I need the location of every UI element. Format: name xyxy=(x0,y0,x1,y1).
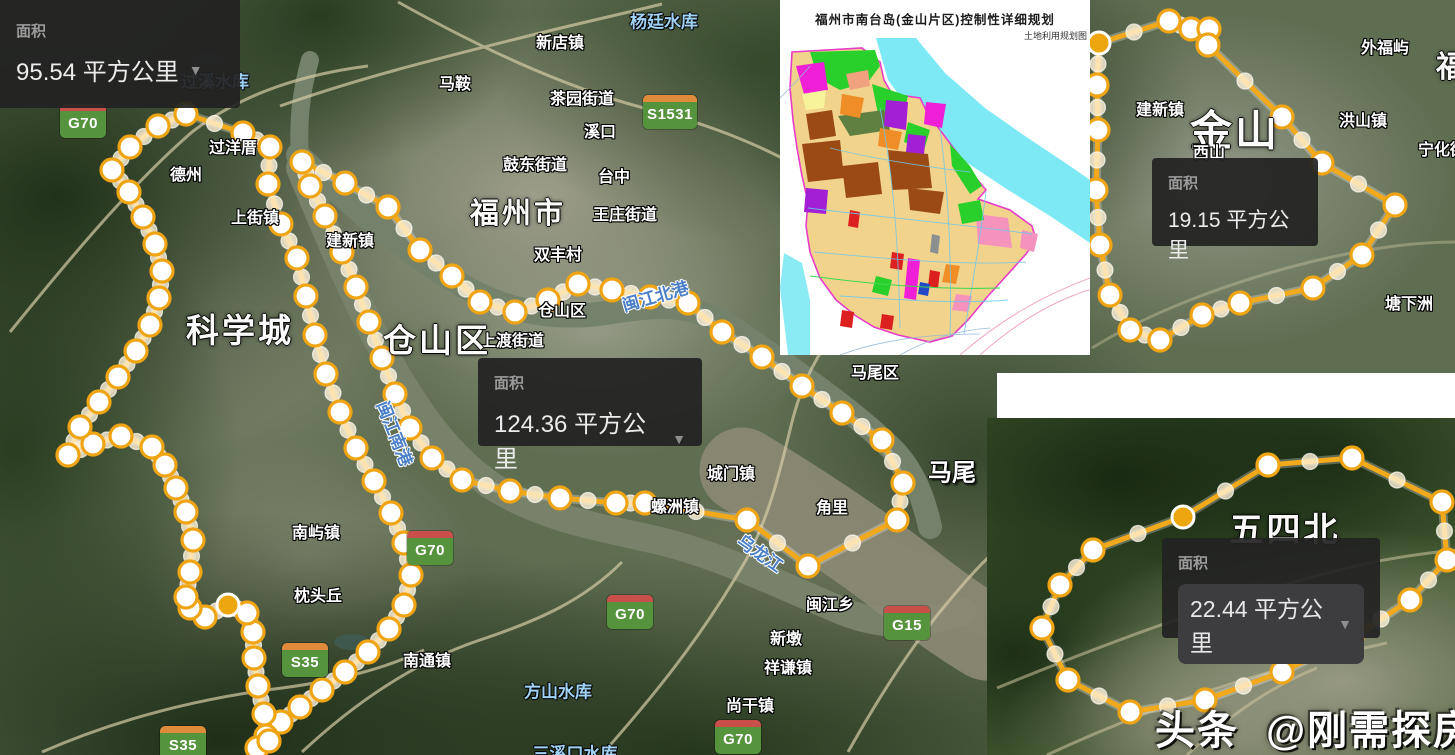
polygon-vertex[interactable] xyxy=(88,391,110,413)
polygon-vertex[interactable] xyxy=(1031,617,1053,639)
polygon-midpoint-handle[interactable] xyxy=(885,454,901,470)
polygon-vertex[interactable] xyxy=(1229,292,1251,314)
polygon-vertex[interactable] xyxy=(259,136,281,158)
polygon-vertex[interactable] xyxy=(315,363,337,385)
polygon-vertex[interactable] xyxy=(1197,34,1219,56)
polygon-midpoint-handle[interactable] xyxy=(697,310,713,326)
polygon-vertex[interactable] xyxy=(118,181,140,203)
polygon-vertex[interactable] xyxy=(605,492,627,514)
polygon-vertex[interactable] xyxy=(299,175,321,197)
polygon-vertex[interactable] xyxy=(139,314,161,336)
polygon-vertex[interactable] xyxy=(601,279,623,301)
polygon-midpoint-handle[interactable] xyxy=(527,487,543,503)
polygon-vertex[interactable] xyxy=(1089,234,1111,256)
polygon-vertex[interactable] xyxy=(441,265,463,287)
polygon-vertex[interactable] xyxy=(57,444,79,466)
polygon-vertex[interactable] xyxy=(148,287,170,309)
polygon-midpoint-handle[interactable] xyxy=(313,347,329,363)
polygon-vertex[interactable] xyxy=(182,529,204,551)
polygon-midpoint-handle[interactable] xyxy=(1389,472,1405,488)
polygon-midpoint-handle[interactable] xyxy=(1089,152,1105,168)
polygon-vertex[interactable] xyxy=(1341,447,1363,469)
polygon-vertex[interactable] xyxy=(289,696,311,718)
polygon-vertex[interactable] xyxy=(736,509,758,531)
polygon-vertex[interactable] xyxy=(409,239,431,261)
polygon-midpoint-handle[interactable] xyxy=(1069,560,1085,576)
area-value-text: 19.15 平方公里 xyxy=(1168,204,1302,264)
polygon-midpoint-handle[interactable] xyxy=(294,269,310,285)
inset-separator xyxy=(997,373,1455,418)
polygon-vertex[interactable] xyxy=(797,555,819,577)
polygon-vertex[interactable] xyxy=(363,470,385,492)
polygon-vertex[interactable] xyxy=(258,730,280,752)
caret-down-icon[interactable]: ▼ xyxy=(1338,616,1352,632)
polygon-vertex[interactable] xyxy=(1099,284,1121,306)
polygon-midpoint-handle[interactable] xyxy=(1330,264,1346,280)
polygon-midpoint-handle[interactable] xyxy=(854,419,870,435)
polygon-vertex[interactable] xyxy=(132,206,154,228)
polygon-midpoint-handle[interactable] xyxy=(1090,100,1106,116)
polygon-midpoint-handle[interactable] xyxy=(326,226,342,242)
polygon-vertex[interactable] xyxy=(1436,549,1455,571)
polygon-midpoint-handle[interactable] xyxy=(1097,262,1113,278)
polygon-vertex[interactable] xyxy=(1384,194,1406,216)
polygon-vertex[interactable] xyxy=(331,241,353,263)
caret-down-icon[interactable]: ▼ xyxy=(189,62,203,78)
watermark: 头条 @刚需探房 xyxy=(1155,698,1455,755)
polygon-vertex[interactable] xyxy=(147,115,169,137)
polygon-vertex[interactable] xyxy=(119,136,141,158)
polygon-midpoint-handle[interactable] xyxy=(1130,526,1146,542)
polygon-vertex[interactable] xyxy=(1271,661,1293,683)
area-panel-caption: 面积 xyxy=(16,20,224,41)
polygon-vertex[interactable] xyxy=(175,501,197,523)
polygon-midpoint-handle[interactable] xyxy=(396,221,412,237)
polygon-midpoint-handle[interactable] xyxy=(774,364,790,380)
caret-down-icon[interactable]: ▼ xyxy=(672,431,686,447)
polygon-vertex[interactable] xyxy=(537,289,559,311)
area-panel-caption: 面积 xyxy=(1178,552,1364,573)
polygon-vertex[interactable] xyxy=(1302,277,1324,299)
polygon-vertex[interactable] xyxy=(791,375,813,397)
polygon-vertex[interactable] xyxy=(243,647,265,669)
polygon-vertex[interactable] xyxy=(639,286,661,308)
area-panel-kexuecheng: 面积 95.54 平方公里 ▼ xyxy=(0,0,240,108)
planning-map-inset: 福州市南台岛(金山片区)控制性详细规划 土地利用规划图 xyxy=(780,0,1090,355)
polygon-vertex[interactable] xyxy=(677,292,699,314)
polygon-vertex[interactable] xyxy=(751,346,773,368)
polygon-midpoint-handle[interactable] xyxy=(428,255,444,271)
polygon-vertex[interactable] xyxy=(1257,454,1279,476)
planning-map-title: 福州市南台岛(金山片区)控制性详细规划 xyxy=(780,0,1090,28)
polygon-vertex[interactable] xyxy=(711,321,733,343)
polygon-midpoint-handle[interactable] xyxy=(1437,523,1453,539)
polygon-vertex[interactable] xyxy=(371,347,393,369)
polygon-midpoint-handle[interactable] xyxy=(1213,301,1229,317)
polygon-vertex-selected[interactable] xyxy=(1172,506,1194,528)
polygon-vertex[interactable] xyxy=(499,480,521,502)
polygon-vertex[interactable] xyxy=(1049,574,1071,596)
polygon-midpoint-handle[interactable] xyxy=(478,478,494,494)
polygon-vertex[interactable] xyxy=(125,340,147,362)
polygon-vertex[interactable] xyxy=(400,564,422,586)
polygon-vertex[interactable] xyxy=(247,675,269,697)
area-value: 19.15 平方公里 xyxy=(1168,204,1302,264)
polygon-vertex[interactable] xyxy=(451,469,473,491)
polygon-vertex[interactable] xyxy=(304,324,326,346)
polygon-vertex[interactable] xyxy=(567,273,589,295)
satellite-map-screenshot: 新店镇马鞍茶园街道溪口鼓东街道台中福州市王庄街道双丰村仓山区上渡街道仓山区科学城… xyxy=(0,0,1455,755)
polygon-midpoint-handle[interactable] xyxy=(580,493,596,509)
polygon-vertex[interactable] xyxy=(549,487,571,509)
polygon-vertex[interactable] xyxy=(1087,119,1109,141)
polygon-midpoint-handle[interactable] xyxy=(1269,288,1285,304)
polygon-vertex[interactable] xyxy=(1158,10,1180,32)
polygon-vertex[interactable] xyxy=(1271,106,1293,128)
polygon-midpoint-handle[interactable] xyxy=(1126,24,1142,40)
polygon-midpoint-handle[interactable] xyxy=(1090,210,1106,226)
area-panel-caption: 面积 xyxy=(494,372,686,393)
polygon-midpoint-handle[interactable] xyxy=(1091,688,1107,704)
polygon-vertex[interactable] xyxy=(1119,319,1141,341)
polygon-vertex[interactable] xyxy=(253,703,275,725)
polygon-vertex[interactable] xyxy=(107,366,129,388)
polygon-vertex[interactable] xyxy=(1191,304,1213,326)
polygon-midpoint-handle[interactable] xyxy=(1090,56,1106,72)
polygon-vertex[interactable] xyxy=(175,586,197,608)
polygon-vertex[interactable] xyxy=(393,594,415,616)
polygon-midpoint-handle[interactable] xyxy=(734,337,750,353)
polygon-vertex[interactable] xyxy=(469,291,491,313)
polygon-vertex[interactable] xyxy=(232,122,254,144)
polygon-vertex[interactable] xyxy=(378,618,400,640)
area-panel-cangshan: 面积 124.36 平方公里 ▼ xyxy=(478,358,702,446)
polygon-vertex[interactable] xyxy=(110,425,132,447)
polygon-vertex[interactable] xyxy=(384,383,406,405)
polygon-vertex[interactable] xyxy=(377,196,399,218)
polygon-vertex[interactable] xyxy=(165,477,187,499)
polygon-vertex[interactable] xyxy=(345,437,367,459)
polygon-midpoint-handle[interactable] xyxy=(1371,222,1387,238)
polygon-midpoint-handle[interactable] xyxy=(1047,646,1063,662)
polygon-midpoint-handle[interactable] xyxy=(661,292,677,308)
polygon-vertex[interactable] xyxy=(1057,669,1079,691)
polygon-vertex[interactable] xyxy=(329,401,351,423)
area-value-dropdown[interactable]: 22.44 平方公里 ▼ xyxy=(1178,584,1364,664)
watermark-brand: 头条 xyxy=(1155,709,1239,753)
polygon-midpoint-handle[interactable] xyxy=(340,422,356,438)
polygon-vertex[interactable] xyxy=(101,159,123,181)
polygon-vertex[interactable] xyxy=(144,233,166,255)
polygon-midpoint-handle[interactable] xyxy=(261,158,277,174)
area-value-dropdown[interactable]: 124.36 平方公里 ▼ xyxy=(494,404,686,474)
polygon-vertex[interactable] xyxy=(69,416,91,438)
area-value-dropdown[interactable]: 95.54 平方公里 ▼ xyxy=(16,52,224,87)
polygon-vertex[interactable] xyxy=(345,276,367,298)
polygon-vertex[interactable] xyxy=(380,502,402,524)
polygon-vertex[interactable] xyxy=(421,447,443,469)
polygon-vertex[interactable] xyxy=(871,429,893,451)
area-panel-caption: 面积 xyxy=(1168,172,1302,193)
polygon-vertex-selected[interactable] xyxy=(217,594,239,616)
polygon-vertex[interactable] xyxy=(393,532,415,554)
area-value: 124.36 平方公里 xyxy=(494,404,662,474)
polygon-vertex[interactable] xyxy=(886,509,908,531)
polygon-vertex[interactable] xyxy=(314,205,336,227)
polygon-midpoint-handle[interactable] xyxy=(1302,454,1318,470)
polygon-midpoint-handle[interactable] xyxy=(1421,572,1437,588)
area-panel-wusibei: 面积 22.44 平方公里 ▼ xyxy=(1162,538,1380,638)
polygon-vertex[interactable] xyxy=(179,561,201,583)
polygon-vertex[interactable] xyxy=(270,213,292,235)
polygon-vertex[interactable] xyxy=(504,301,526,323)
polygon-midpoint-handle[interactable] xyxy=(207,116,223,132)
polygon-vertex[interactable] xyxy=(399,417,421,439)
polygon-vertex[interactable] xyxy=(311,679,333,701)
polygon-midpoint-handle[interactable] xyxy=(1043,599,1059,615)
polygon-vertex-selected[interactable] xyxy=(1088,32,1110,54)
polygon-vertex[interactable] xyxy=(1119,701,1141,723)
polygon-midpoint-handle[interactable] xyxy=(303,308,319,324)
area-value: 22.44 平方公里 xyxy=(1190,590,1328,658)
polygon-midpoint-handle[interactable] xyxy=(1236,678,1252,694)
polygon-vertex[interactable] xyxy=(151,260,173,282)
watermark-handle: @刚需探房 xyxy=(1266,709,1455,753)
polygon-midpoint-handle[interactable] xyxy=(770,535,786,551)
polygon-midpoint-handle[interactable] xyxy=(1237,73,1253,89)
polygon-vertex[interactable] xyxy=(295,285,317,307)
area-panel-jinshan: 面积 19.15 平方公里 xyxy=(1152,158,1318,246)
polygon-midpoint-handle[interactable] xyxy=(892,494,908,510)
polygon-vertex[interactable] xyxy=(1431,491,1453,513)
polygon-vertex[interactable] xyxy=(892,472,914,494)
polygon-midpoint-handle[interactable] xyxy=(1351,176,1367,192)
polygon-midpoint-handle[interactable] xyxy=(267,196,283,212)
planning-map-graphic xyxy=(780,38,1090,355)
polygon-vertex[interactable] xyxy=(831,402,853,424)
polygon-vertex[interactable] xyxy=(334,661,356,683)
polygon-vertex[interactable] xyxy=(291,151,313,173)
polygon-vertex[interactable] xyxy=(357,641,379,663)
polygon-vertex[interactable] xyxy=(634,492,656,514)
polygon-midpoint-handle[interactable] xyxy=(1173,320,1189,336)
polygon-midpoint-handle[interactable] xyxy=(359,187,375,203)
polygon-midpoint-handle[interactable] xyxy=(688,504,704,520)
polygon-vertex[interactable] xyxy=(1082,539,1104,561)
polygon-vertex[interactable] xyxy=(257,173,279,195)
polygon-vertex[interactable] xyxy=(1149,329,1171,351)
polygon-vertex[interactable] xyxy=(1351,244,1373,266)
polygon-midpoint-handle[interactable] xyxy=(1112,305,1128,321)
polygon-midpoint-handle[interactable] xyxy=(845,535,861,551)
polygon-midpoint-handle[interactable] xyxy=(623,286,639,302)
polygon-vertex[interactable] xyxy=(334,172,356,194)
polygon-midpoint-handle[interactable] xyxy=(814,392,830,408)
polygon-vertex[interactable] xyxy=(358,311,380,333)
polygon-midpoint-handle[interactable] xyxy=(1218,483,1234,499)
polygon-midpoint-handle[interactable] xyxy=(1294,132,1310,148)
polygon-vertex[interactable] xyxy=(1399,589,1421,611)
polygon-midpoint-handle[interactable] xyxy=(325,385,341,401)
area-value: 95.54 平方公里 xyxy=(16,52,179,87)
polygon-vertex[interactable] xyxy=(286,247,308,269)
polygon-vertex[interactable] xyxy=(141,436,163,458)
